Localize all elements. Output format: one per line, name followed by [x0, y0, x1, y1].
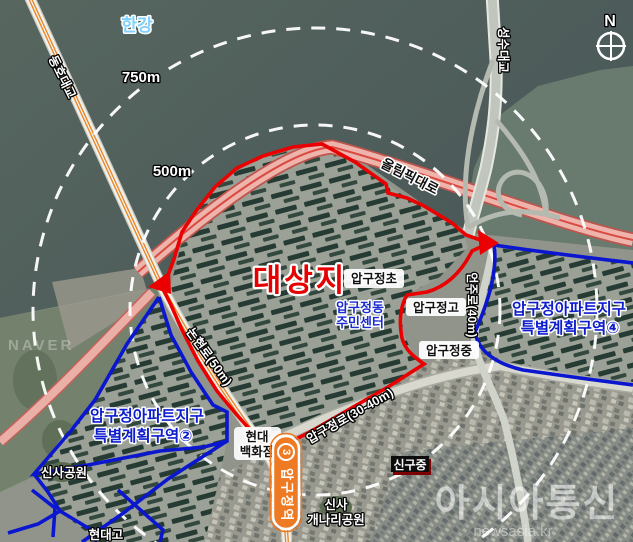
- label-sinsa-park: 신사공원: [41, 465, 87, 480]
- label-site: 대상지: [253, 263, 348, 298]
- agency-watermark: 아시아통신: [435, 483, 620, 525]
- compass-n-label: N: [604, 13, 616, 30]
- label-district2-line1: 압구정아파트지구: [90, 407, 204, 425]
- label-apgujeong-middle: 압구정중: [426, 343, 473, 358]
- label-community-center-1: 압구정동: [336, 300, 384, 315]
- label-hyundai-dept-1: 현대: [245, 429, 268, 444]
- label-hangang: 한강: [121, 16, 153, 35]
- label-seongsu-bridge: 성수대교: [496, 27, 510, 74]
- label-district4-line2: 특별계획구역④: [521, 318, 620, 337]
- label-apgujeong-elementary: 압구정초: [351, 271, 398, 286]
- label-ring-750m: 750m: [122, 69, 160, 86]
- label-gaenari-1: 신사: [324, 497, 348, 512]
- label-ring-500m: 500m: [153, 163, 191, 180]
- label-gaenari-2: 개나리공원: [307, 512, 365, 527]
- label-hyundai-high: 현대고: [89, 527, 124, 542]
- line3-number: 3: [280, 449, 292, 455]
- label-singu-middle: 신구중: [393, 457, 426, 472]
- label-station-name: 압구정역: [280, 468, 295, 522]
- label-district4-line1: 압구정아파트지구: [512, 300, 626, 318]
- map-canvas: 한강 750m 500m 동호대교 성수대교 올림픽대로 논현로(50m) 압구…: [0, 0, 633, 542]
- label-district2-line2: 특별계획구역②: [94, 426, 193, 445]
- agency-url-watermark: newsasia.kr: [473, 523, 552, 540]
- naver-watermark: NAVER: [8, 337, 74, 354]
- label-apgujeong-high: 압구정고: [413, 300, 460, 315]
- satellite-map[interactable]: 한강 750m 500m 동호대교 성수대교 올림픽대로 논현로(50m) 압구…: [0, 0, 633, 542]
- label-hyundai-dept-2: 백화점: [240, 444, 275, 459]
- label-community-center-2: 주민센터: [336, 315, 384, 330]
- apgujeong-station-marker: 3 압구정역: [271, 434, 302, 532]
- label-eonju-ro: 언주로(40m): [465, 272, 480, 337]
